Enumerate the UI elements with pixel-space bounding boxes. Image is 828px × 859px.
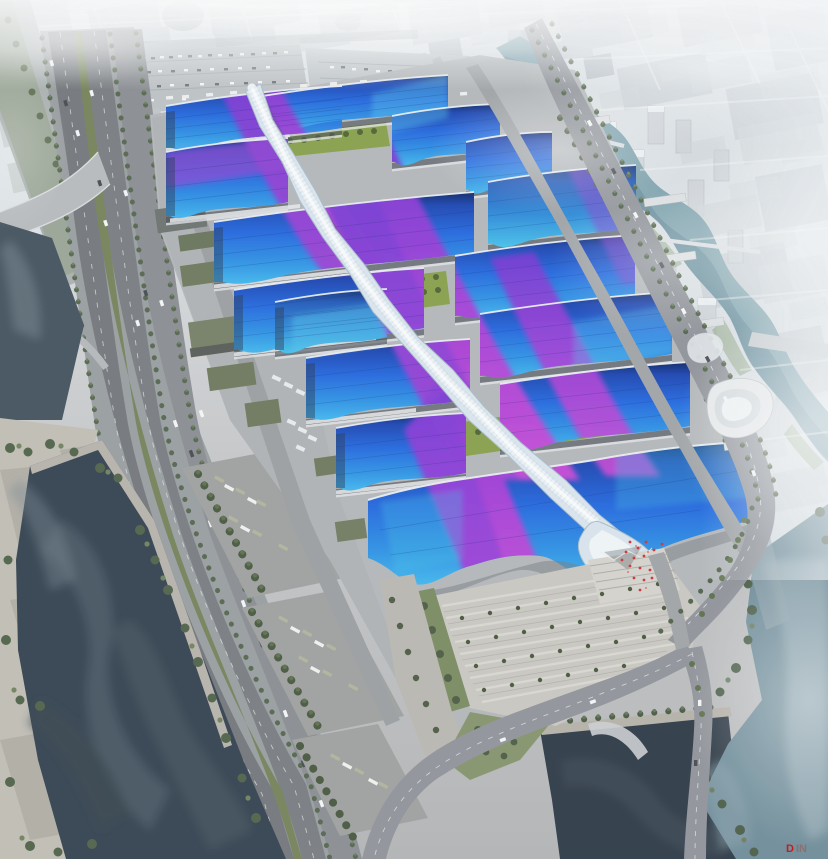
svg-text:IN: IN: [796, 843, 807, 855]
svg-text:D: D: [786, 843, 794, 855]
